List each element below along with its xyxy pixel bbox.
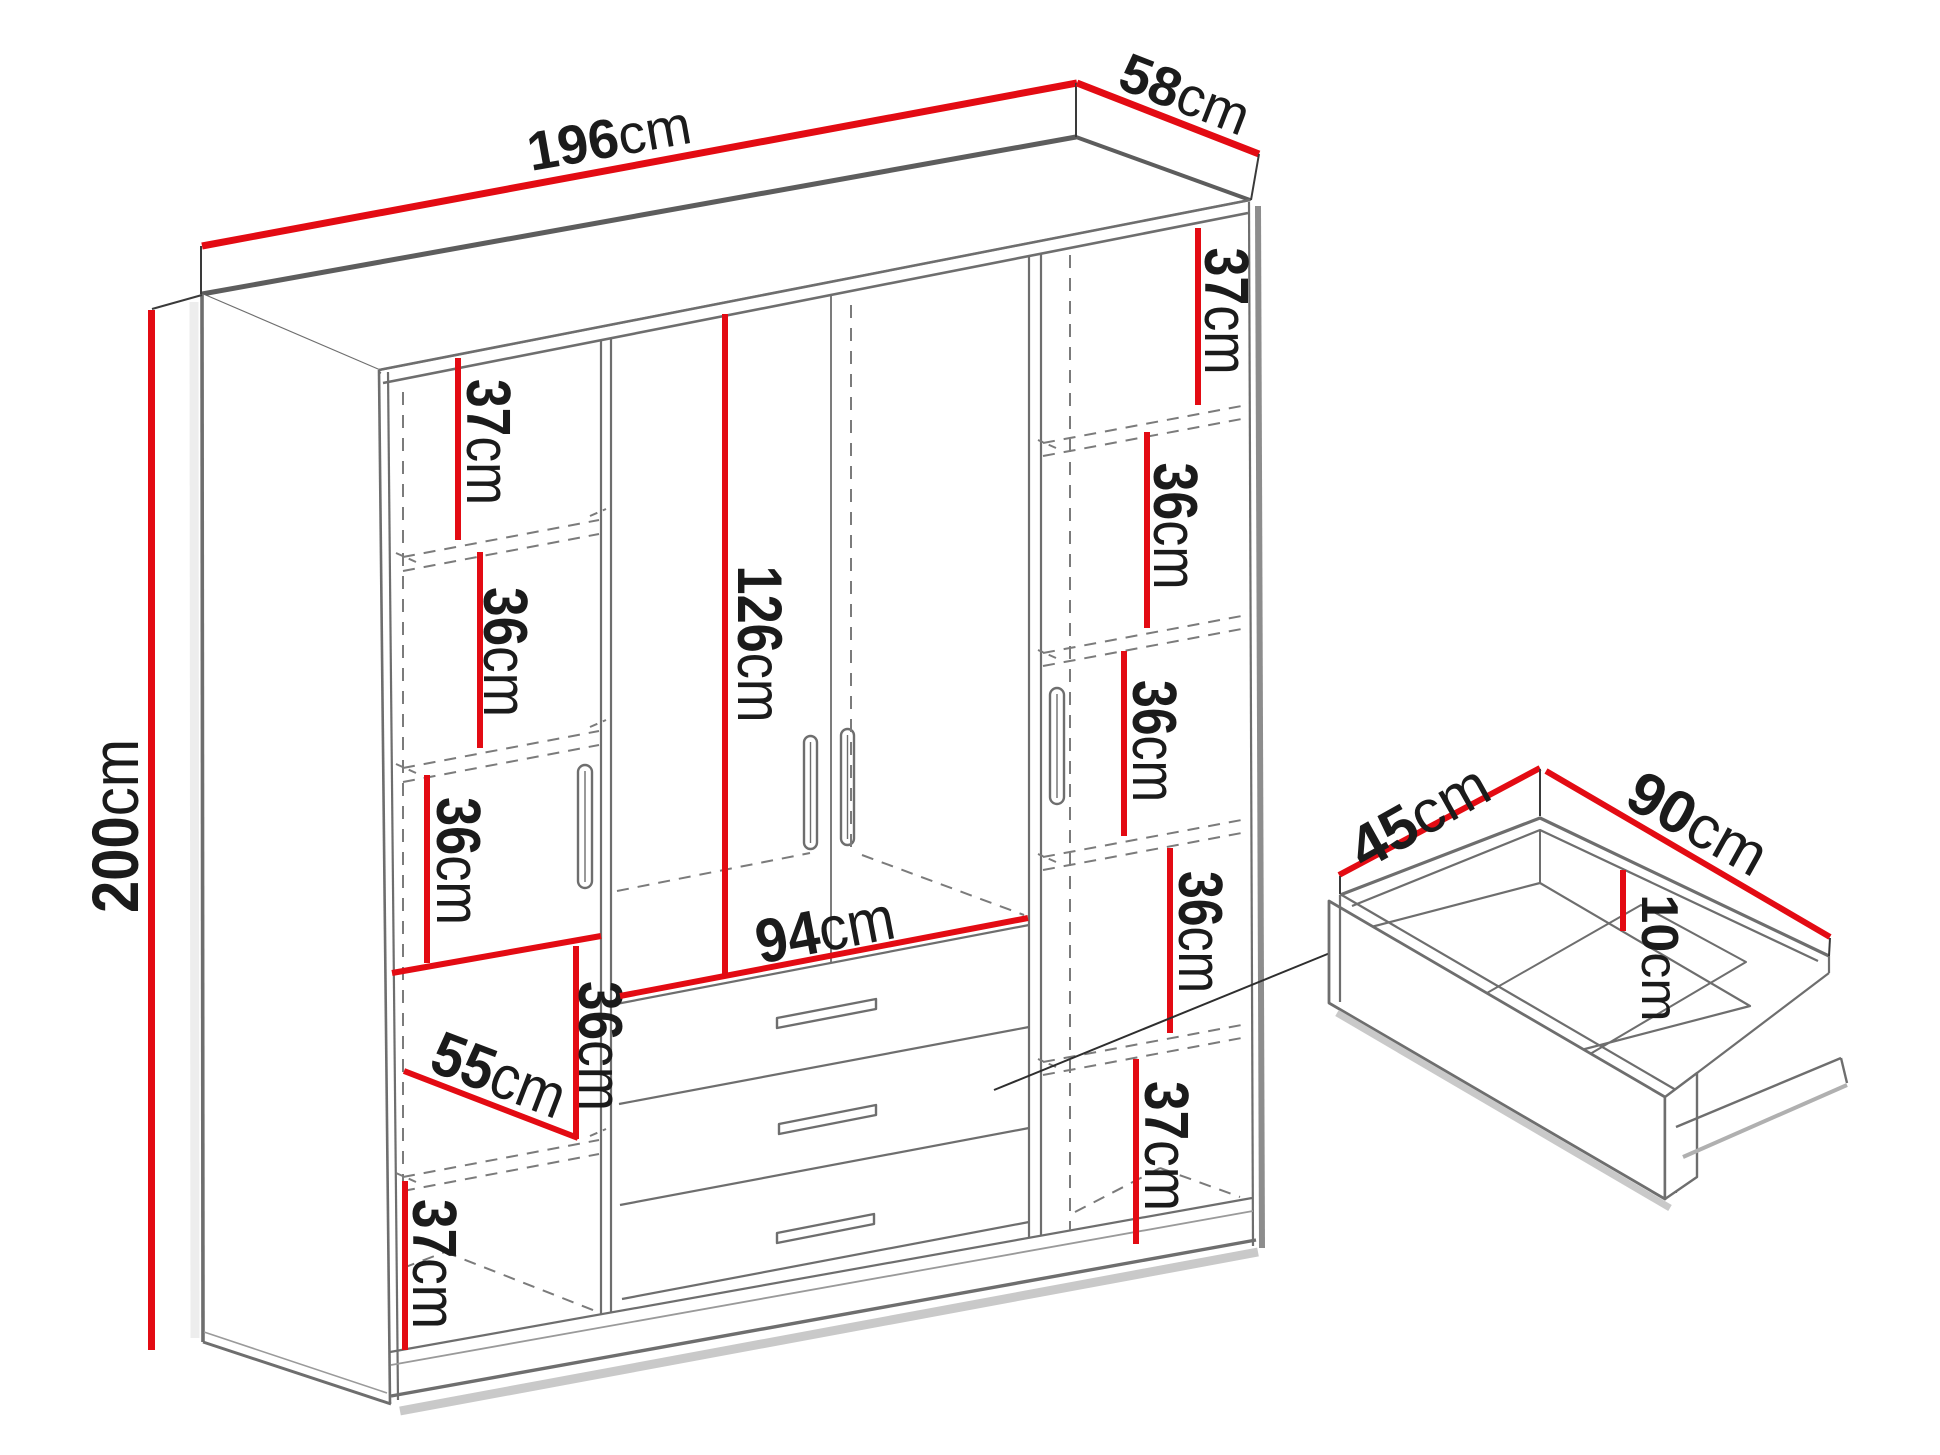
svg-text:10cm: 10cm [1630, 894, 1688, 1021]
svg-text:37cm: 37cm [400, 1199, 469, 1329]
svg-text:37cm: 37cm [1192, 248, 1261, 375]
svg-text:37cm: 37cm [1132, 1081, 1201, 1211]
svg-text:36cm: 36cm [424, 797, 493, 925]
svg-text:37cm: 37cm [454, 379, 523, 505]
svg-text:36cm: 36cm [1120, 680, 1189, 802]
svg-text:126cm: 126cm [724, 566, 794, 723]
svg-text:200cm: 200cm [78, 739, 152, 913]
svg-text:36cm: 36cm [1166, 871, 1235, 993]
svg-text:36cm: 36cm [471, 587, 540, 717]
svg-text:36cm: 36cm [566, 981, 635, 1111]
svg-text:36cm: 36cm [1141, 463, 1210, 590]
